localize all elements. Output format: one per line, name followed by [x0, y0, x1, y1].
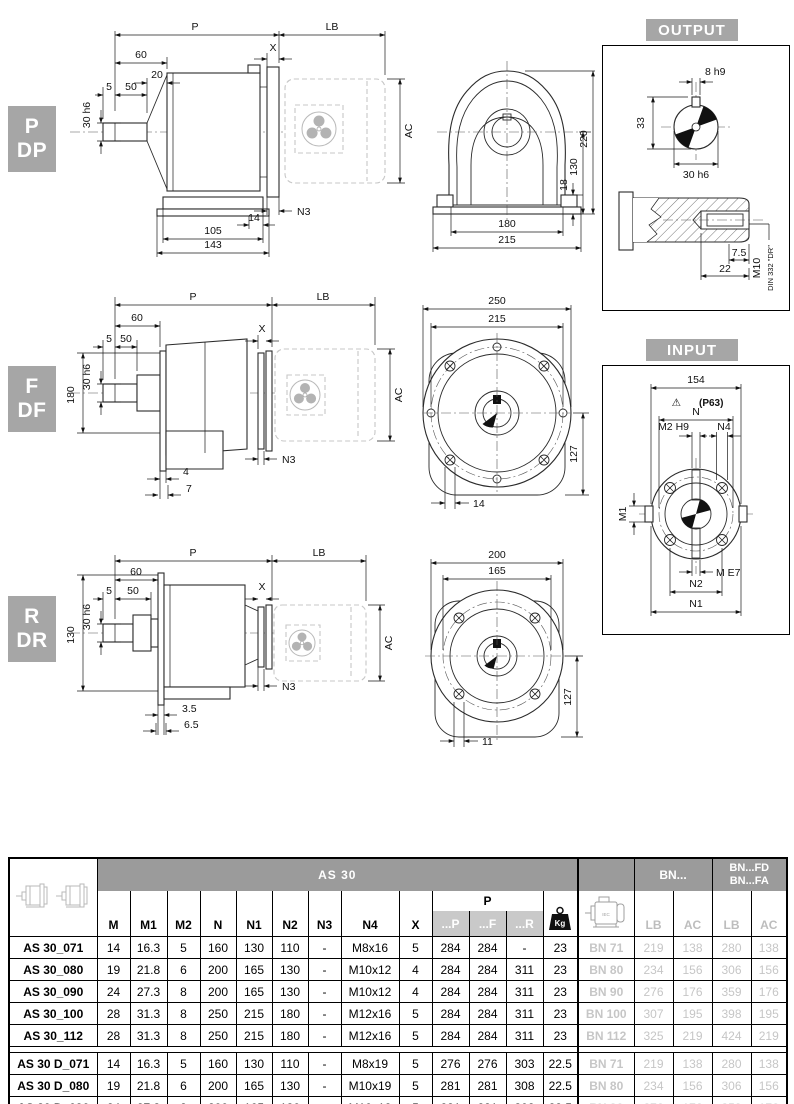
table-cell: 219 [751, 1025, 787, 1047]
table-cell: 27.3 [130, 1097, 167, 1104]
dim-label-130: 130 [65, 626, 77, 644]
col-header-x: X [399, 891, 432, 937]
table-row: AS 30 D_0711416.35160130110-M8x195276276… [9, 1053, 787, 1075]
table-cell: 176 [673, 981, 712, 1003]
table-row: AS 30_1122831.38250215180-M12x1652842843… [9, 1025, 787, 1047]
dim-label-7: 7 [186, 483, 192, 495]
table-cell: 234 [634, 1075, 673, 1097]
table-cell: 200 [200, 981, 236, 1003]
table-cell: 156 [673, 959, 712, 981]
dim-label-35: 3.5 [182, 703, 197, 715]
table-cell: 23 [543, 959, 578, 981]
table-cell: M10x19 [341, 1075, 399, 1097]
table-cell: BN 80 [578, 1075, 634, 1097]
catalog-page: P LB 60 20 X 5 50 30 h6 AC [0, 0, 794, 1104]
table-cell: 234 [634, 959, 673, 981]
table-cell: 176 [751, 981, 787, 1003]
table-cell: 16.3 [130, 1053, 167, 1075]
table-cell: 130 [272, 959, 308, 981]
dim-label-220: 220 [578, 130, 590, 148]
table-cell: 19 [97, 959, 130, 981]
table-cell: 28 [97, 1003, 130, 1025]
dim-label-127: 127 [562, 688, 574, 706]
bnfd-group-header: BN...FD BN...FA [712, 858, 787, 891]
table-cell: 130 [236, 937, 272, 959]
dim-label-5: 5 [106, 333, 112, 345]
table-cell: 281 [469, 1097, 506, 1104]
table-cell: 398 [712, 1003, 751, 1025]
table-cell: 311 [506, 959, 543, 981]
bn-group-header: BN... [634, 858, 712, 891]
warn-label: (P63) [699, 398, 723, 409]
col-header-p: ...P [432, 911, 469, 936]
table-cell: 284 [469, 959, 506, 981]
table-cell: 8 [167, 1003, 200, 1025]
table-cell: 311 [506, 1025, 543, 1047]
dim-label-165: 165 [488, 565, 506, 577]
table-cell: 28 [97, 1025, 130, 1047]
table-cell: 5 [399, 1053, 432, 1075]
badge-pdp-line1: P [25, 115, 40, 139]
table-cell: M10x12 [341, 959, 399, 981]
table-cell: 130 [272, 1075, 308, 1097]
table-cell: 5 [399, 937, 432, 959]
col-header-lb: LB [634, 891, 673, 937]
table-cell: 176 [673, 1097, 712, 1104]
dim-label-154: 154 [687, 374, 705, 386]
row-label: AS 30_112 [9, 1025, 97, 1047]
motor-band-cell [578, 858, 634, 891]
table-cell: 284 [432, 1003, 469, 1025]
badge-fdf: F DF [8, 366, 56, 432]
table-cell: M12x16 [341, 1025, 399, 1047]
badge-rdr: R DR [8, 596, 56, 662]
dim-label-33: 33 [635, 117, 647, 129]
dim-label-ac: AC [383, 635, 395, 650]
table-cell: 5 [399, 1003, 432, 1025]
table-cell: - [308, 959, 341, 981]
motor-column-header: IEC [578, 891, 634, 937]
dim-label-215: 215 [488, 313, 506, 325]
table-cell: 307 [634, 1003, 673, 1025]
table-cell: 215 [236, 1025, 272, 1047]
gearbox-icons-cell [9, 858, 97, 937]
table-cell: 165 [236, 1097, 272, 1104]
dim-label-5: 5 [106, 585, 112, 597]
dim-label-75: 7.5 [732, 247, 747, 259]
table-cell: - [506, 937, 543, 959]
table-cell: 14 [97, 937, 130, 959]
table-cell: 250 [200, 1003, 236, 1025]
table-cell: 23 [543, 937, 578, 959]
dim-label-p: P [189, 291, 196, 303]
dim-label-4: 4 [183, 466, 189, 478]
table-cell: 281 [432, 1075, 469, 1097]
table-cell: 21.8 [130, 959, 167, 981]
dim-label-5: 5 [106, 81, 112, 93]
badge-rdr-line2: DR [16, 629, 47, 653]
pdp-front-view: 18 130 220 180 215 [433, 61, 595, 252]
motor-icon: IEC [583, 896, 629, 928]
table-cell: 5 [399, 1097, 432, 1104]
weight-icon: Kg [549, 906, 571, 931]
table-row: AS 30_1002831.38250215180-M12x1652842843… [9, 1003, 787, 1025]
table-cell: 180 [272, 1025, 308, 1047]
output-panel: 8 h9 33 30 h6 [602, 45, 790, 311]
row-label: AS 30_100 [9, 1003, 97, 1025]
dim-label-215: 215 [498, 234, 516, 246]
dim-label-lb: LB [317, 291, 330, 303]
table-cell: 200 [200, 1097, 236, 1104]
dim-label-n3: N3 [282, 681, 296, 693]
table-cell: 303 [506, 1053, 543, 1075]
col-header-m1: M1 [130, 891, 167, 937]
row-label: AS 30 D_071 [9, 1053, 97, 1075]
table-cell: BN 80 [578, 959, 634, 981]
table-row: AS 30_0902427.38200165130-M10x1242842843… [9, 981, 787, 1003]
dim-label-lb: LB [313, 547, 326, 559]
table-cell: BN 71 [578, 937, 634, 959]
table-cell: 284 [432, 1025, 469, 1047]
table-cell: 138 [673, 1053, 712, 1075]
table-cell: 22.5 [543, 1075, 578, 1097]
dim-label-n: N [692, 406, 700, 418]
table-cell: 156 [673, 1075, 712, 1097]
table-cell: M8x16 [341, 937, 399, 959]
fdf-drawing: P LB 60 5 50 X 30 h6 180 [55, 283, 595, 545]
output-title: OUTPUT [646, 19, 738, 41]
dim-label-n3: N3 [297, 206, 311, 218]
dim-label-n1: N1 [689, 598, 703, 610]
table-cell: - [308, 1075, 341, 1097]
table-cell: BN 112 [578, 1025, 634, 1047]
table-cell: 284 [469, 1003, 506, 1025]
table-cell: 276 [634, 1097, 673, 1104]
gearbox-icon [55, 881, 92, 911]
table-cell: 200 [200, 959, 236, 981]
dim-label-200: 200 [488, 549, 506, 561]
table-cell: 284 [469, 937, 506, 959]
table-cell: 160 [200, 937, 236, 959]
table-row: AS 30_0711416.35160130110-M8x165284284-2… [9, 937, 787, 959]
table-cell: 8 [167, 981, 200, 1003]
dim-label-60: 60 [135, 49, 147, 61]
input-panel: 154 ⚠ (P63) N M2 H9 N4 [602, 365, 790, 635]
kg-label: Kg [555, 919, 566, 928]
table-cell: BN 71 [578, 1053, 634, 1075]
table-title: AS 30 [97, 858, 578, 891]
table-cell: 6 [167, 1075, 200, 1097]
table-cell: 5 [399, 1025, 432, 1047]
table-cell: 165 [236, 981, 272, 1003]
dim-label-22: 22 [719, 263, 731, 275]
table-cell: 8 [167, 1025, 200, 1047]
col-header-n1: N1 [236, 891, 272, 937]
table-cell: 219 [673, 1025, 712, 1047]
col-header-r: ...R [506, 911, 543, 936]
dim-label-p: P [191, 21, 198, 33]
table-cell: - [308, 1053, 341, 1075]
dim-label-x: X [269, 42, 276, 54]
dim-label-180: 180 [65, 386, 77, 404]
table-cell: 180 [272, 1003, 308, 1025]
input-title: INPUT [646, 339, 738, 361]
table-cell: 22.5 [543, 1097, 578, 1104]
table-cell: 156 [751, 1075, 787, 1097]
input-flange-view: 154 ⚠ (P63) N M2 H9 N4 [617, 374, 753, 616]
dim-label-n4: N4 [717, 421, 731, 433]
dim-label-105: 105 [204, 225, 222, 237]
badge-pdp-line2: DP [17, 139, 47, 163]
table-cell: 14 [97, 1053, 130, 1075]
table-cell: 308 [506, 1075, 543, 1097]
table-cell: M10x12 [341, 1097, 399, 1104]
table-cell: 281 [432, 1097, 469, 1104]
weight-column-header: Kg [543, 891, 578, 937]
motor-icon-label: IEC [603, 912, 611, 917]
table-cell: 31.3 [130, 1003, 167, 1025]
table-cell: 284 [432, 981, 469, 1003]
badge-rdr-line1: R [24, 605, 40, 629]
table-cell: 424 [712, 1025, 751, 1047]
col-header-n3: N3 [308, 891, 341, 937]
table-cell: 359 [712, 1097, 751, 1104]
row-label: AS 30 D_080 [9, 1075, 97, 1097]
table-cell: BN 90 [578, 1097, 634, 1104]
table-cell: BN 100 [578, 1003, 634, 1025]
table-cell: 23 [543, 1003, 578, 1025]
table-cell: 110 [272, 937, 308, 959]
table-cell: M8x19 [341, 1053, 399, 1075]
table-cell: 19 [97, 1075, 130, 1097]
dim-label-18: 18 [558, 179, 570, 191]
dim-label-11: 11 [482, 736, 493, 748]
dim-label-me7: M E7 [716, 567, 741, 579]
table-cell: 276 [432, 1053, 469, 1075]
table-cell: 130 [236, 1053, 272, 1075]
table-cell: - [308, 937, 341, 959]
table-cell: 156 [751, 959, 787, 981]
dim-label-180: 180 [498, 218, 516, 230]
table-cell: 27.3 [130, 981, 167, 1003]
dimension-table: AS 30 BN... BN...FD BN...FA M M1 M2 N N1… [8, 857, 788, 1104]
table-cell: 138 [751, 937, 787, 959]
dim-label-shaft: 30 h6 [683, 169, 709, 181]
table-cell: 23 [543, 1025, 578, 1047]
label-m10: M10 [751, 258, 763, 279]
table-cell: 31.3 [130, 1025, 167, 1047]
bnfd-line2: BN...FA [714, 875, 786, 888]
dim-label-x: X [258, 323, 265, 335]
dim-label-50: 50 [120, 333, 132, 345]
table-cell: BN 90 [578, 981, 634, 1003]
dim-label-x: X [258, 581, 265, 593]
table-cell: 325 [634, 1025, 673, 1047]
table-cell: 22.5 [543, 1053, 578, 1075]
dim-label-130: 130 [568, 158, 580, 176]
table-cell: 311 [506, 1003, 543, 1025]
table-body: AS 30_0711416.35160130110-M8x165284284-2… [9, 937, 787, 1104]
table-cell: - [308, 981, 341, 1003]
dim-label-ac: AC [403, 123, 415, 138]
table-row: AS 30 D_0902427.38200165130-M10x12528128… [9, 1097, 787, 1104]
table-cell: 5 [167, 937, 200, 959]
table-cell: 219 [634, 937, 673, 959]
table-cell: 110 [272, 1053, 308, 1075]
table-cell: 311 [506, 981, 543, 1003]
dim-label-250: 250 [488, 295, 506, 307]
fdf-front-view: 250 215 127 14 [423, 295, 589, 510]
rdr-side-view: P LB 60 5 50 X 30 h6 130 A [65, 547, 395, 735]
dim-label-key: 8 h9 [705, 66, 726, 78]
col-header-m: M [97, 891, 130, 937]
table-cell: 21.8 [130, 1075, 167, 1097]
table-cell: 306 [712, 959, 751, 981]
table-cell: 219 [634, 1053, 673, 1075]
badge-fdf-line1: F [25, 375, 38, 399]
output-shaft-end-view: 8 h9 33 30 h6 [635, 66, 731, 181]
col-header-n4: N4 [341, 891, 399, 937]
dim-label-m1: M1 [617, 507, 629, 522]
table-cell: 359 [712, 981, 751, 1003]
table-cell: 284 [432, 959, 469, 981]
col-header-ac-fd: AC [751, 891, 787, 937]
table-cell: 165 [236, 1075, 272, 1097]
dim-label-m2: M2 H9 [658, 421, 689, 433]
table-cell: 215 [236, 1003, 272, 1025]
rdr-drawing: P LB 60 5 50 X 30 h6 130 A [55, 545, 595, 763]
row-label: AS 30_090 [9, 981, 97, 1003]
table-cell: 4 [399, 959, 432, 981]
table-cell: - [308, 1097, 341, 1104]
dim-label-n2: N2 [689, 578, 703, 590]
table-cell: 5 [167, 1053, 200, 1075]
dim-label-127: 127 [568, 445, 580, 463]
table-cell: M10x12 [341, 981, 399, 1003]
table-cell: 24 [97, 981, 130, 1003]
dim-label-14: 14 [473, 498, 485, 510]
dim-label-60: 60 [131, 312, 143, 324]
table-cell: 16.3 [130, 937, 167, 959]
output-drawing: 8 h9 33 30 h6 [603, 46, 787, 307]
table-row: AS 30_0801921.86200165130-M10x1242842843… [9, 959, 787, 981]
dim-label-shaft: 30 h6 [81, 102, 93, 128]
table-cell: M12x16 [341, 1003, 399, 1025]
table-cell: 130 [272, 1097, 308, 1104]
badge-fdf-line2: DF [18, 399, 47, 423]
col-header-lb-fd: LB [712, 891, 751, 937]
table-row: AS 30 D_0801921.86200165130-M10x19528128… [9, 1075, 787, 1097]
table-cell: 250 [200, 1025, 236, 1047]
dim-label-ac: AC [393, 387, 405, 402]
table-cell: - [308, 1025, 341, 1047]
table-cell: 276 [634, 981, 673, 1003]
dim-label-65: 6.5 [184, 719, 199, 731]
dim-label-p: P [189, 547, 196, 559]
gearbox-icon [15, 881, 52, 911]
label-din332: DIN 332 "DR" [766, 245, 775, 291]
table-cell: 6 [167, 959, 200, 981]
table-cell: 280 [712, 1053, 751, 1075]
table-cell: 195 [673, 1003, 712, 1025]
badge-pdp: P DP [8, 106, 56, 172]
p-group-header: P [432, 891, 543, 911]
dim-label-60: 60 [130, 566, 142, 578]
col-header-n2: N2 [272, 891, 308, 937]
rdr-front-view: 200 165 127 11 [425, 549, 583, 748]
table-cell: 306 [712, 1075, 751, 1097]
row-label: AS 30 D_090 [9, 1097, 97, 1104]
dim-label-14: 14 [248, 212, 260, 224]
table-cell: 284 [469, 1025, 506, 1047]
table-cell: 165 [236, 959, 272, 981]
table-cell: 8 [167, 1097, 200, 1104]
bnfd-line1: BN...FD [714, 862, 786, 875]
pdp-drawing: P LB 60 20 X 5 50 30 h6 AC [55, 15, 595, 265]
table-cell: 130 [272, 981, 308, 1003]
table-cell: 276 [469, 1053, 506, 1075]
input-drawing: 154 ⚠ (P63) N M2 H9 N4 [603, 366, 787, 631]
table-cell: 4 [399, 981, 432, 1003]
table-cell: 5 [399, 1075, 432, 1097]
table-cell: 284 [469, 981, 506, 1003]
table-cell: 200 [200, 1075, 236, 1097]
dim-label-50: 50 [127, 585, 139, 597]
table-cell: - [308, 1003, 341, 1025]
table-cell: 138 [751, 1053, 787, 1075]
output-section-view: 7.5 22 M10 DIN 332 "DR" [619, 192, 775, 291]
table-cell: 195 [751, 1003, 787, 1025]
row-label: AS 30_071 [9, 937, 97, 959]
col-header-f: ...F [469, 911, 506, 936]
dim-label-50: 50 [125, 81, 137, 93]
dim-label-20: 20 [151, 69, 163, 81]
table-cell: 138 [673, 937, 712, 959]
dim-label-143: 143 [204, 239, 222, 251]
table-cell: 24 [97, 1097, 130, 1104]
dim-label-lb: LB [326, 21, 339, 33]
pdp-side-view: P LB 60 20 X 5 50 30 h6 AC [70, 21, 415, 257]
table-cell: 308 [506, 1097, 543, 1104]
dim-label-n3: N3 [282, 454, 296, 466]
table-cell: 284 [432, 937, 469, 959]
table-cell: 160 [200, 1053, 236, 1075]
row-label: AS 30_080 [9, 959, 97, 981]
table-cell: 281 [469, 1075, 506, 1097]
col-header-ac: AC [673, 891, 712, 937]
warning-icon: ⚠ [672, 397, 682, 409]
col-header-n: N [200, 891, 236, 937]
table-cell: 23 [543, 981, 578, 1003]
table-cell: 176 [751, 1097, 787, 1104]
table-cell: 280 [712, 937, 751, 959]
fdf-side-view: P LB 60 5 50 X 30 h6 180 [65, 291, 405, 499]
col-header-m2: M2 [167, 891, 200, 937]
